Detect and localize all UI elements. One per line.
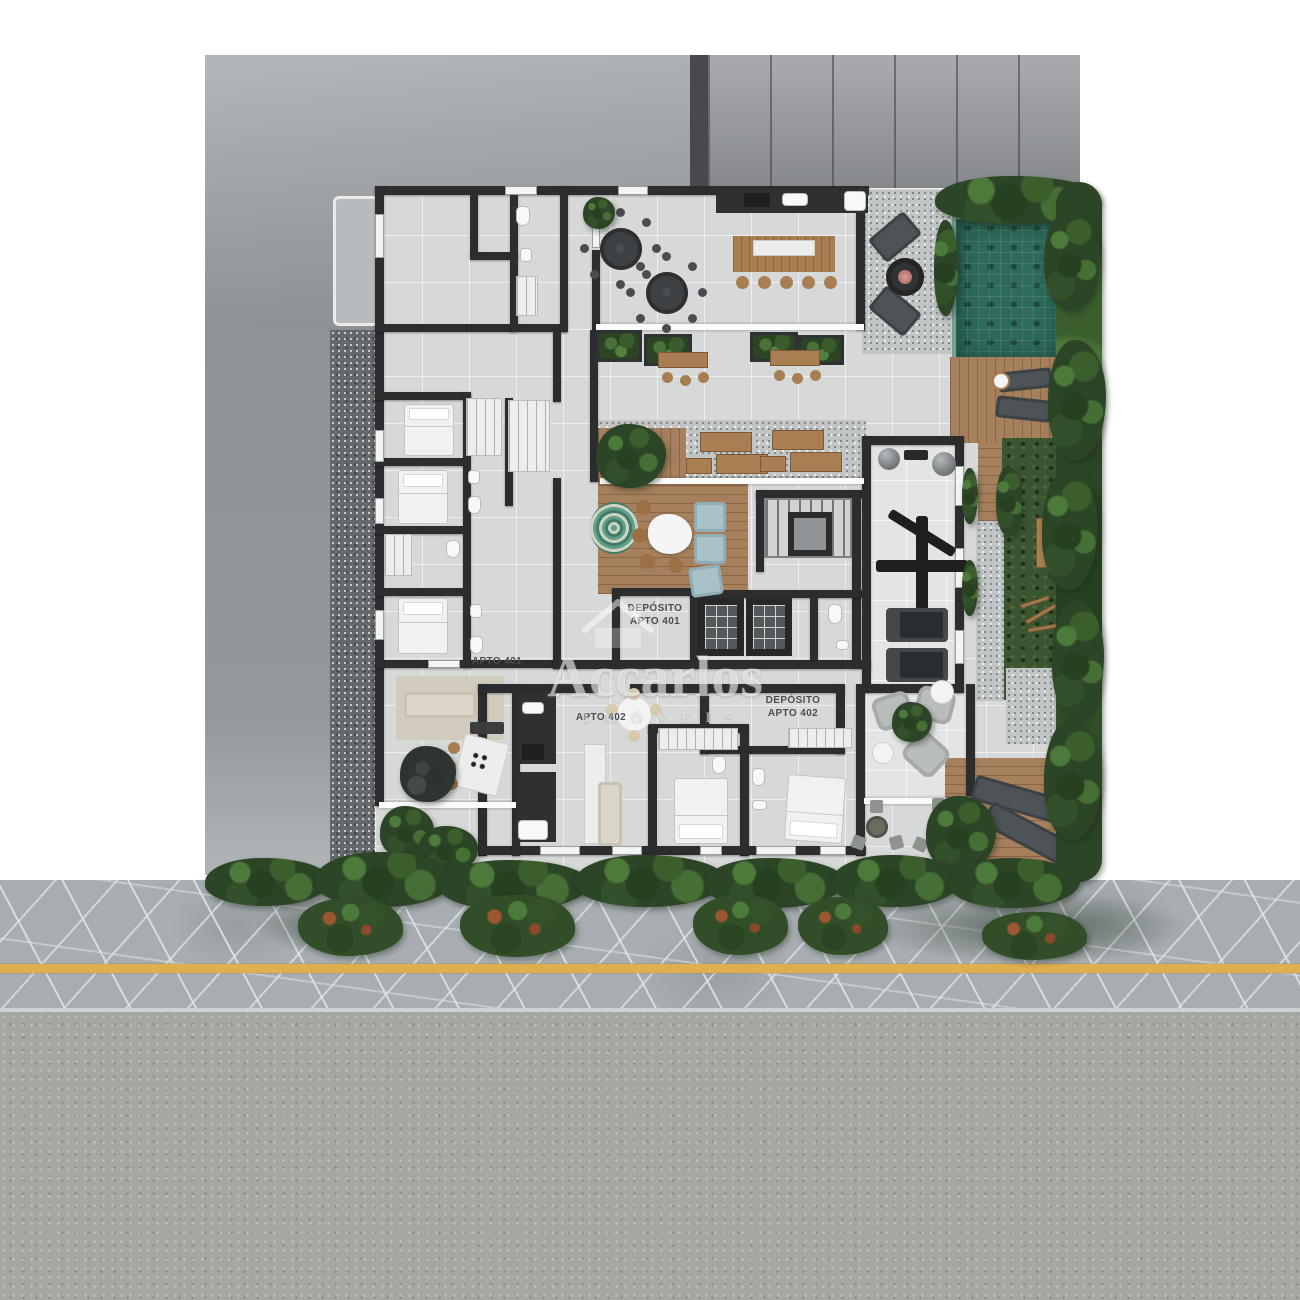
bed [398, 470, 448, 524]
wall [375, 664, 384, 806]
closet [466, 398, 502, 456]
round-mosaic-rug [590, 502, 638, 554]
terrace-table [770, 350, 820, 366]
exercise-ball [878, 448, 900, 470]
bed [784, 774, 846, 844]
side-table [930, 680, 954, 704]
toilet [446, 540, 460, 558]
round-dining-table [646, 272, 688, 314]
picnic-bench [760, 456, 786, 472]
pouf [640, 554, 655, 569]
sofa-module [694, 502, 726, 532]
bed [398, 598, 448, 654]
treadmill [886, 608, 948, 642]
roof-panels-right [708, 55, 1080, 188]
wall [756, 490, 862, 498]
picnic-table [700, 432, 752, 452]
window [820, 846, 846, 855]
bistro-table [866, 816, 888, 838]
wall [852, 490, 861, 668]
cooktop [522, 744, 544, 760]
street [0, 1012, 1300, 1300]
shower [384, 534, 412, 576]
sink [470, 604, 482, 618]
bed [404, 404, 454, 456]
elevator-shaft [788, 512, 832, 556]
sofa [404, 692, 476, 718]
wall [648, 724, 657, 856]
watermark: Accarlos IMÓVEIS [535, 598, 775, 733]
sofa [598, 782, 622, 846]
wall [375, 588, 467, 596]
wall [375, 392, 471, 400]
shower [516, 276, 538, 316]
gravel-strip-right [976, 521, 1004, 701]
gravel-corner [1006, 668, 1058, 744]
window [540, 846, 580, 855]
terrace-stools [774, 370, 824, 382]
pouf [632, 528, 647, 543]
roof-dark-edge [690, 55, 708, 188]
treadmill [886, 648, 948, 682]
terrace-stools [662, 372, 712, 384]
wall [560, 186, 568, 332]
exercise-ball [932, 452, 956, 476]
side-table [872, 742, 894, 764]
road-marking-yellow-line [0, 964, 1300, 973]
pouf [636, 500, 651, 515]
planter-box [596, 330, 642, 362]
window [375, 430, 384, 462]
window [375, 498, 384, 524]
wall [862, 436, 964, 445]
wall [375, 324, 567, 332]
bar-stools [730, 276, 832, 289]
skylight-panel [333, 196, 379, 326]
roof-left-column [205, 330, 330, 875]
sofa-module [688, 564, 724, 598]
wall [856, 684, 865, 856]
toilet [470, 636, 483, 654]
pouf [668, 558, 683, 573]
dumbbell-rack [904, 450, 928, 460]
wall [740, 724, 749, 856]
toilet [516, 206, 530, 226]
cooktop [744, 193, 770, 207]
toilet [712, 756, 726, 774]
wall [810, 596, 818, 660]
terrace-table [658, 352, 708, 368]
watermark-brand: Accarlos [535, 648, 775, 706]
stool [448, 742, 460, 754]
wall [756, 490, 764, 572]
wall [470, 194, 478, 256]
window [375, 610, 384, 640]
sink [468, 470, 480, 484]
fire-pit [886, 258, 924, 296]
closet [508, 400, 550, 472]
island-counter-top [753, 240, 815, 256]
street-shrub [298, 898, 403, 956]
bistro-chair [870, 800, 883, 813]
watermark-subtitle: IMÓVEIS [545, 710, 785, 727]
window [700, 846, 722, 855]
kitchen-sink [782, 193, 808, 206]
house-icon [581, 598, 655, 650]
picnic-table [772, 430, 824, 450]
granite-side-strip [330, 330, 377, 878]
closet [788, 728, 852, 748]
floor-plan-rendering: DEPÓSITO APTO 401 APTO 40 [0, 0, 1300, 1300]
label-apto-401: APTO 401 [452, 655, 542, 668]
sink [520, 248, 532, 262]
side-table [992, 372, 1010, 390]
sofa-module [694, 534, 726, 564]
window [955, 630, 964, 664]
sink [752, 800, 767, 810]
window [612, 846, 642, 855]
toilet [828, 604, 842, 624]
curb [0, 1008, 1300, 1012]
street-shrub [693, 895, 788, 955]
coffee-table [648, 514, 692, 554]
wall [592, 250, 600, 332]
street-shrub [798, 897, 888, 955]
window [618, 186, 648, 195]
wall [553, 332, 561, 402]
sink [836, 640, 849, 650]
refrigerator [844, 191, 866, 211]
tv-sideboard [470, 722, 504, 734]
picnic-table [790, 452, 842, 472]
picnic-bench [686, 458, 712, 474]
round-dining-table [600, 228, 642, 270]
toilet [752, 768, 765, 786]
bed [674, 778, 728, 844]
window [756, 846, 796, 855]
street-shrub [982, 912, 1087, 960]
wall [966, 684, 975, 796]
window [505, 186, 537, 195]
street-shrub [460, 895, 575, 957]
refrigerator [518, 820, 548, 840]
wall [375, 526, 467, 534]
wall [375, 458, 467, 466]
wall [862, 436, 871, 692]
toilet [468, 496, 481, 514]
window [375, 214, 384, 258]
wall [478, 846, 866, 855]
